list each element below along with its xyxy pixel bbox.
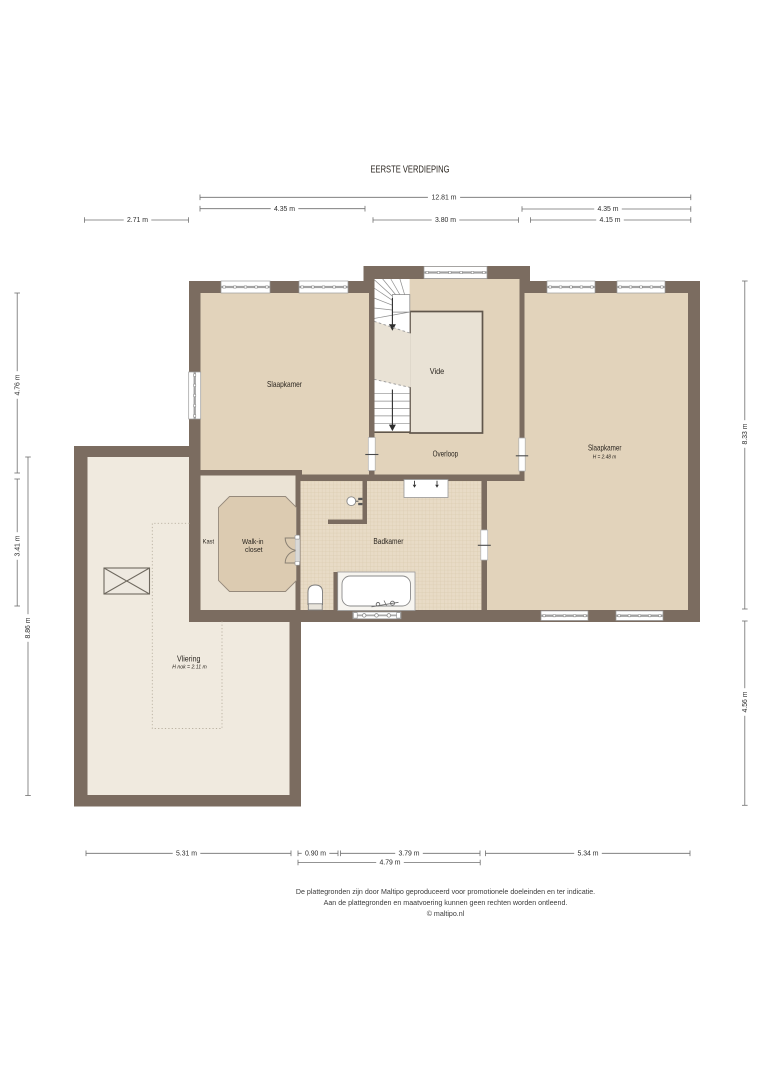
svg-text:H = 2.48 m: H = 2.48 m — [593, 455, 617, 461]
svg-text:Vide: Vide — [430, 367, 445, 376]
svg-text:8.33 m: 8.33 m — [742, 423, 749, 444]
svg-text:12.81 m: 12.81 m — [432, 195, 457, 202]
svg-text:© maltipo.nl: © maltipo.nl — [427, 910, 465, 918]
svg-text:4.15 m: 4.15 m — [599, 217, 620, 224]
svg-text:Slaapkamer: Slaapkamer — [588, 443, 622, 453]
svg-text:closet: closet — [245, 545, 263, 554]
svg-text:0.90 m: 0.90 m — [305, 851, 326, 858]
svg-text:3.79 m: 3.79 m — [398, 851, 419, 858]
svg-text:Aan de plattegronden en maatvo: Aan de plattegronden en maatvoering kunn… — [324, 899, 568, 907]
svg-text:De plattegronden zijn door Mal: De plattegronden zijn door Maltipo gepro… — [296, 888, 595, 896]
svg-text:3.41 m: 3.41 m — [14, 535, 21, 556]
svg-text:4.56 m: 4.56 m — [742, 691, 749, 712]
svg-text:Overloop: Overloop — [433, 450, 459, 459]
svg-text:EERSTE VERDIEPING: EERSTE VERDIEPING — [371, 165, 450, 176]
svg-text:H nok = 2.11 m: H nok = 2.11 m — [172, 664, 207, 670]
svg-text:4.79 m: 4.79 m — [379, 860, 400, 867]
svg-text:4.76 m: 4.76 m — [14, 374, 21, 395]
svg-text:Badkamer: Badkamer — [373, 537, 403, 546]
svg-text:4.35 m: 4.35 m — [597, 206, 618, 213]
svg-text:2.71 m: 2.71 m — [127, 217, 148, 224]
svg-text:Slaapkamer: Slaapkamer — [267, 379, 302, 389]
svg-text:3.80 m: 3.80 m — [435, 217, 456, 224]
svg-text:5.34 m: 5.34 m — [577, 851, 598, 858]
svg-text:8.86 m: 8.86 m — [25, 617, 32, 638]
svg-text:4.35 m: 4.35 m — [274, 206, 295, 213]
svg-text:5.31 m: 5.31 m — [176, 851, 197, 858]
svg-text:Kast: Kast — [203, 539, 215, 546]
svg-text:Vliering: Vliering — [177, 655, 201, 664]
